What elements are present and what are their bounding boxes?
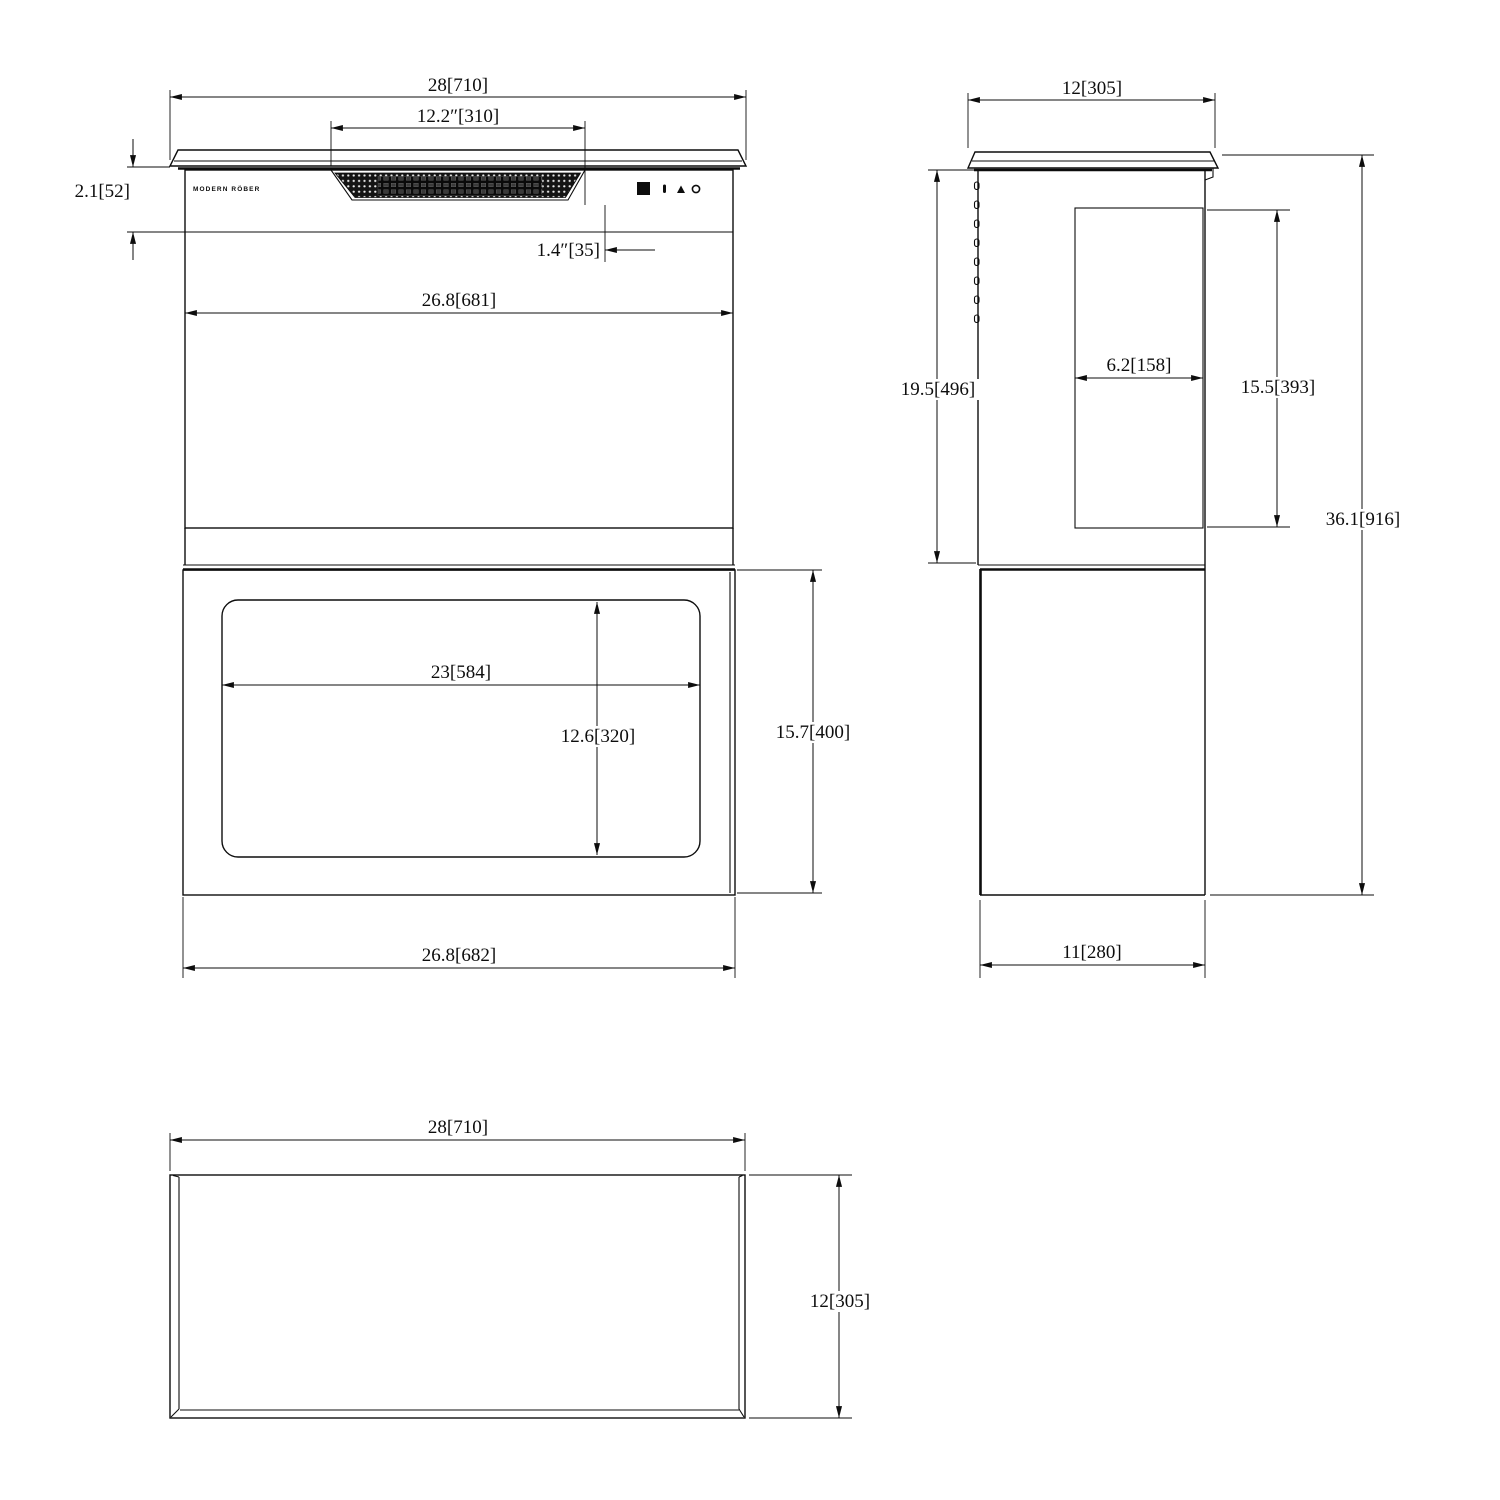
dim-side-top-depth-group: 12[305] — [968, 78, 1215, 148]
dim-front-vent-offset-group: 1.4″[35] — [537, 205, 655, 262]
dim-front-lower-width: 26.8[682] — [422, 945, 496, 966]
side-view: 12[305] 19.5[496] 6.2[158] 15.5[393] — [896, 78, 1407, 978]
front-lip — [170, 150, 746, 169]
dim-front-window-width-group: 23[584] — [222, 662, 700, 685]
display-screen-icon — [637, 182, 650, 195]
dim-side-total-height: 36.1[916] — [1326, 509, 1400, 530]
dim-front-window-width: 23[584] — [431, 662, 491, 683]
vent-grille — [331, 170, 585, 200]
front-lower-box — [183, 570, 735, 895]
dim-front-window-height: 12.6[320] — [561, 726, 635, 747]
dim-side-duct-height: 15.5[393] — [1241, 377, 1315, 398]
dim-side-duct-height-group: 15.5[393] — [1207, 210, 1321, 527]
dim-front-control-height: 2.1[52] — [75, 181, 130, 202]
dim-front-control-height-group: 2.1[52] — [75, 139, 185, 260]
technical-drawing-page: MODERN RÖBER 28[710] — [0, 0, 1500, 1500]
front-middle-band — [183, 528, 735, 570]
light-icon — [677, 186, 685, 194]
dim-top-depth: 12[305] — [810, 1291, 870, 1312]
dim-side-upper-height-group: 19.5[496] — [896, 170, 980, 563]
dim-front-upper-width: 26.8[681] — [422, 290, 496, 311]
dim-side-bottom-depth: 11[280] — [1062, 942, 1121, 963]
dim-side-duct-depth-group: 6.2[158] — [1075, 355, 1203, 378]
dim-front-lower-height: 15.7[400] — [776, 722, 850, 743]
dim-side-upper-height: 19.5[496] — [901, 379, 975, 400]
dim-side-duct-depth: 6.2[158] — [1107, 355, 1172, 376]
dim-top-width-group: 28[710] — [170, 1117, 745, 1171]
side-lower-body — [978, 565, 1205, 895]
power-icon — [692, 185, 699, 192]
brand-logo: MODERN RÖBER — [193, 184, 260, 193]
front-view: MODERN RÖBER 28[710] — [75, 75, 855, 978]
top-view-outline — [170, 1175, 745, 1418]
top-view: 28[710] 12[305] — [170, 1117, 883, 1418]
control-panel — [637, 182, 700, 195]
dim-top-width: 28[710] — [428, 1117, 488, 1138]
side-lip — [968, 152, 1218, 170]
side-upper-body — [978, 168, 1213, 895]
dim-side-total-height-group: 36.1[916] — [1210, 155, 1407, 895]
dim-front-window-height-group: 12.6[320] — [556, 602, 640, 855]
dim-front-total-width: 28[710] — [428, 75, 488, 96]
dim-front-lower-height-group: 15.7[400] — [737, 570, 855, 893]
dim-front-lower-width-group: 26.8[682] — [183, 897, 735, 978]
dim-top-depth-group: 12[305] — [749, 1175, 883, 1418]
dim-front-upper-width-group: 26.8[681] — [185, 290, 733, 313]
dim-front-vent-offset: 1.4″[35] — [537, 240, 600, 261]
dim-front-vent-width: 12.2″[310] — [417, 106, 499, 127]
speed-bar-icon — [663, 185, 666, 194]
dim-side-top-depth: 12[305] — [1062, 78, 1122, 99]
dim-side-bottom-depth-group: 11[280] — [980, 900, 1205, 978]
grille-display-panel — [378, 177, 542, 196]
front-upper-panel — [185, 170, 733, 528]
